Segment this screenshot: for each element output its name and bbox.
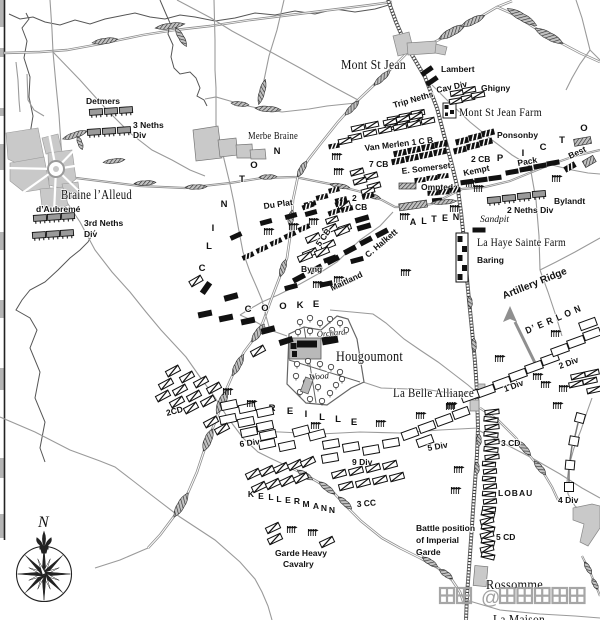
svg-text:Mont St Jean: Mont St Jean: [341, 57, 406, 72]
svg-text:Byng: Byng: [301, 264, 322, 274]
svg-text:Garde Heavy: Garde Heavy: [275, 548, 327, 558]
svg-text:2 CB: 2 CB: [471, 154, 490, 164]
svg-text:E: E: [285, 495, 291, 505]
svg-text:O: O: [250, 160, 257, 171]
svg-text:Cavalry: Cavalry: [283, 559, 314, 569]
svg-text:4 Div: 4 Div: [558, 495, 579, 505]
svg-text:I: I: [305, 409, 308, 420]
svg-text:C: C: [245, 304, 252, 315]
svg-text:I: I: [522, 148, 525, 159]
svg-text:N: N: [321, 503, 327, 513]
svg-text:3rd Neths: 3rd Neths: [84, 218, 123, 228]
svg-text:5 CD: 5 CD: [496, 532, 515, 542]
svg-text:N: N: [453, 212, 460, 222]
svg-text:Ghigny: Ghigny: [481, 83, 511, 93]
svg-text:Baring: Baring: [477, 255, 504, 265]
svg-text:Bylandt: Bylandt: [554, 196, 585, 206]
svg-text:La Haye Sainte Farm: La Haye Sainte Farm: [477, 235, 566, 249]
svg-text:L: L: [276, 494, 281, 504]
svg-text:Div: Div: [84, 229, 98, 239]
svg-text:Detmers: Detmers: [86, 96, 120, 106]
svg-text:La Belle Alliance: La Belle Alliance: [393, 385, 474, 400]
svg-text:Hougoumont: Hougoumont: [336, 349, 403, 365]
svg-text:O: O: [580, 123, 587, 134]
svg-text:Braine l’Alleud: Braine l’Alleud: [61, 187, 132, 202]
svg-text:O: O: [279, 301, 286, 312]
svg-text:Sandpit: Sandpit: [480, 215, 509, 225]
svg-text:T: T: [559, 135, 565, 146]
svg-text:La Maison: La Maison: [493, 613, 545, 620]
svg-text:E: E: [287, 406, 293, 417]
svg-text:A: A: [410, 217, 417, 227]
svg-text:N: N: [37, 514, 50, 531]
svg-text:O: O: [261, 303, 268, 314]
svg-text:LOBAU: LOBAU: [498, 488, 533, 498]
svg-text:M: M: [302, 499, 309, 509]
svg-text:Battle position: Battle position: [416, 523, 475, 533]
svg-text:E: E: [258, 491, 264, 501]
svg-text:L: L: [268, 492, 273, 502]
svg-text:N: N: [329, 505, 335, 515]
svg-text:L: L: [335, 414, 341, 425]
svg-text:Wood: Wood: [308, 370, 329, 382]
svg-text:E: E: [313, 299, 319, 310]
svg-text:R: R: [294, 496, 300, 506]
svg-text:N: N: [221, 199, 228, 210]
svg-text:Ponsonby: Ponsonby: [497, 130, 538, 140]
svg-text:E: E: [351, 417, 357, 428]
svg-text:CB: CB: [355, 202, 367, 212]
svg-text:C: C: [199, 263, 206, 274]
svg-text:3 Neths: 3 Neths: [133, 120, 164, 130]
svg-text:I: I: [212, 223, 215, 234]
svg-text:3 CC: 3 CC: [356, 497, 376, 509]
svg-text:L: L: [319, 412, 325, 423]
svg-text:Merbe Braine: Merbe Braine: [248, 130, 298, 142]
svg-text:3 CD: 3 CD: [501, 438, 520, 448]
svg-text:N: N: [274, 146, 281, 157]
svg-text:@: @: [481, 588, 500, 609]
svg-text:E: E: [442, 213, 448, 223]
svg-text:T: T: [239, 174, 245, 185]
svg-text:A: A: [313, 501, 319, 511]
svg-text:K: K: [297, 300, 304, 311]
svg-text:Mont St Jean Farm: Mont St Jean Farm: [459, 105, 542, 119]
svg-text:C: C: [540, 142, 547, 153]
svg-text:7 CB: 7 CB: [369, 159, 388, 169]
svg-text:Garde: Garde: [416, 547, 441, 557]
svg-text:L: L: [421, 216, 427, 226]
svg-text:of Imperial: of Imperial: [416, 535, 459, 545]
svg-text:P: P: [497, 153, 504, 164]
svg-text:L: L: [206, 241, 212, 252]
svg-text:Div: Div: [133, 130, 147, 140]
svg-text:Lambert: Lambert: [441, 64, 475, 74]
svg-text:T: T: [431, 214, 437, 224]
svg-text:2 Neths Div: 2 Neths Div: [507, 205, 554, 215]
